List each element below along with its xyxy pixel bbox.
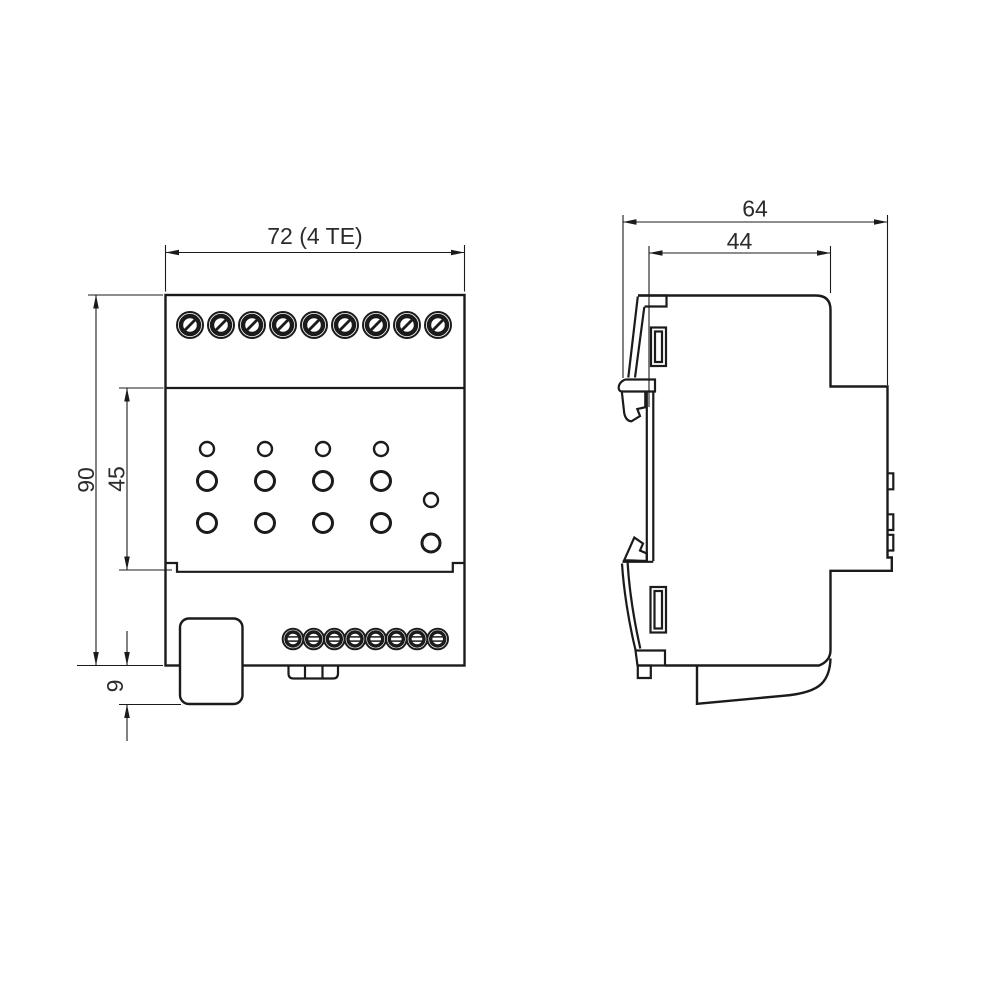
led-indicator [314, 472, 333, 491]
dimension-arrowhead [124, 705, 130, 719]
dimension-arrowhead [93, 295, 99, 309]
dimension-arrowhead [124, 557, 130, 571]
label-height: 90 [73, 467, 99, 493]
side-view [619, 296, 894, 704]
led-indicator [200, 442, 214, 456]
clip-top-step [638, 296, 667, 307]
bottom-tab-slots [305, 666, 323, 679]
led-indicator [316, 442, 330, 456]
front-view [166, 295, 465, 704]
aux-led-indicator [422, 534, 440, 552]
led-indicator [372, 472, 391, 491]
led-indicator [256, 514, 275, 533]
lower-terminal-slot [651, 587, 667, 633]
led-indicator [198, 514, 217, 533]
dimension-arrowhead [93, 652, 99, 666]
dimension-arrowhead [623, 219, 637, 225]
front-lower-divider [166, 563, 465, 572]
dimension-arrowhead [649, 250, 663, 256]
dimension-arrowhead [817, 250, 831, 256]
clip-lower-foot [636, 651, 666, 666]
upper-terminal-slot-inner [655, 332, 662, 363]
label-width: 72 (4 TE) [267, 223, 362, 249]
technical-drawing: 72 (4 TE) 90 45 9 64 44 [0, 0, 1000, 1000]
label-upper-depth: 44 [727, 228, 753, 254]
bottom-tab [289, 666, 339, 679]
led-indicator-grid [198, 442, 391, 533]
bus-connector-block [180, 619, 243, 705]
bottom-terminal-row [283, 629, 448, 650]
led-indicator [258, 442, 272, 456]
clip-lower-hook [624, 538, 647, 562]
led-indicator [374, 442, 388, 456]
led-indicator [372, 514, 391, 533]
led-indicator [314, 514, 333, 533]
dimension-arrowhead [124, 652, 130, 666]
lower-terminal-slot-inner [655, 591, 663, 629]
clip-bar [647, 392, 654, 562]
clip-foot-tab [638, 666, 651, 679]
clip-lower-arm-inner [628, 563, 641, 649]
clip-upper-foot [619, 380, 655, 392]
label-depth: 64 [742, 196, 768, 222]
label-recess: 45 [104, 466, 130, 492]
top-terminal-row [177, 312, 451, 338]
upper-terminal-slot [651, 328, 666, 367]
aux-led-indicator [424, 493, 438, 507]
dimension-arrowhead [124, 388, 130, 402]
label-protrusion: 9 [102, 680, 128, 693]
led-indicator [256, 472, 275, 491]
aux-led-indicators [422, 493, 440, 552]
dimension-arrowhead [874, 219, 888, 225]
dimension-arrowhead [166, 250, 180, 256]
led-indicator [198, 472, 217, 491]
witness-upper-depth [649, 246, 831, 407]
side-body-outline [638, 296, 892, 666]
dimension-arrowhead [451, 250, 465, 256]
clip-upper-jaw [622, 392, 646, 422]
drawing-canvas: 72 (4 TE) 90 45 9 64 44 [0, 0, 1000, 1000]
